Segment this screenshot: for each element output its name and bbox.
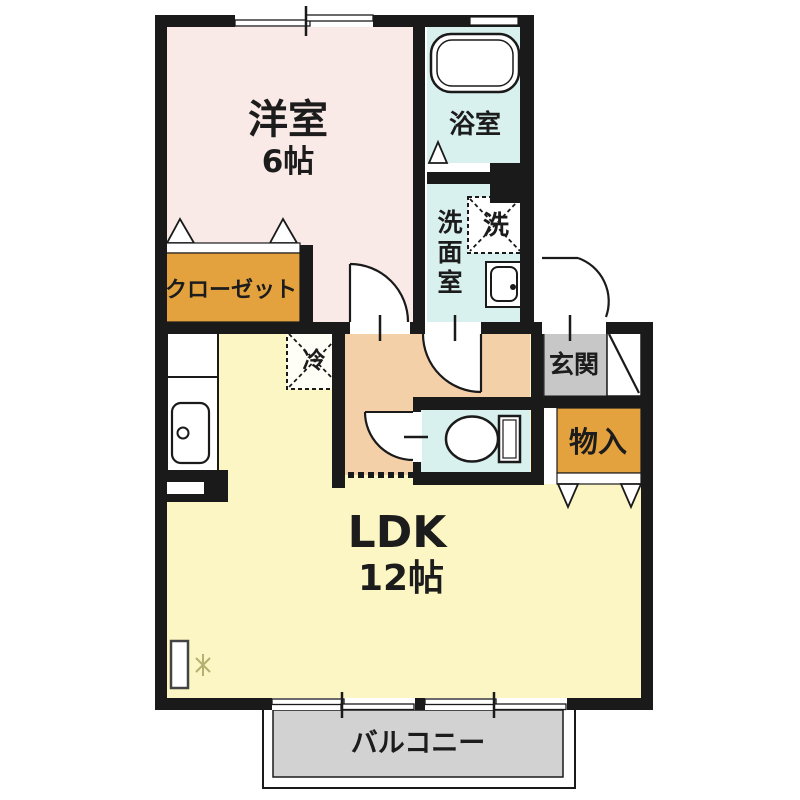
label-washroom-char: 室 (437, 268, 462, 297)
floor-plan-canvas: 洋室 6帖 LDK 12帖 浴室 洗 面 室 洗 冷 クローゼット 玄関 物入 … (0, 0, 800, 800)
label-ldk-size: 12帖 (358, 558, 444, 599)
label-washroom-char: 洗 (437, 208, 462, 237)
label-storage: 物入 (569, 425, 627, 459)
faucet-icon (178, 428, 189, 439)
floor-plan: 洋室 6帖 LDK 12帖 浴室 洗 面 室 洗 冷 クローゼット 玄関 物入 … (0, 0, 800, 800)
label-closet: クローゼット (165, 278, 297, 303)
toilet-room (412, 397, 532, 485)
label-bathroom: 浴室 (449, 109, 501, 140)
bath-doorway (427, 163, 490, 172)
label-balcony: バルコニー (351, 728, 485, 759)
label-washroom-char: 面 (437, 238, 462, 267)
label-entrance: 玄関 (549, 350, 599, 379)
opening-washroom-door (425, 322, 481, 334)
window-bathroom (470, 17, 518, 25)
opening-front-door (542, 322, 606, 334)
door-arc-front (578, 258, 609, 317)
label-fridge-symbol: 冷 (303, 347, 326, 374)
label-washer-symbol: 洗 (483, 211, 509, 241)
label-western-name: 洋室 (248, 97, 328, 143)
label-western-size: 6帖 (262, 144, 315, 180)
washstand-icon (486, 262, 522, 307)
label-ldk-name: LDK (348, 507, 449, 558)
toilet-icon (446, 416, 520, 462)
bathtub-icon (431, 34, 519, 92)
